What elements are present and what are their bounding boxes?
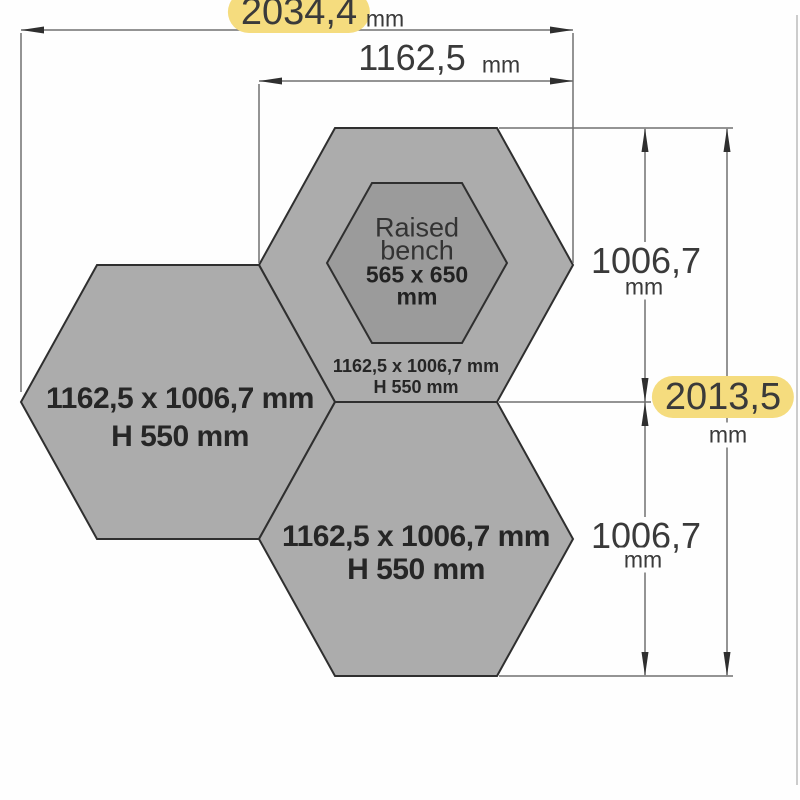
arrowhead-up — [642, 128, 649, 152]
dimension-diagram: 2034,4 mm 1162,5 mm 1006,7 mm 2013,5 mm … — [0, 0, 800, 800]
arrowhead-up — [724, 128, 731, 152]
dim-label-total-width: 2034,4 — [228, 0, 370, 33]
arrowhead-left — [259, 78, 282, 85]
hexagon-left-size-label: 1162,5 x 1006,7 mm — [46, 384, 314, 414]
arrowhead-right — [550, 27, 573, 34]
raised-bench-unit-label: mm — [397, 286, 438, 309]
dim-unit-total-height: mm — [704, 423, 752, 448]
hexagon-left-height-label: H 550 mm — [111, 422, 249, 452]
arrowhead-right — [550, 78, 573, 85]
arrowhead-up — [642, 402, 649, 426]
dim-unit-upper-height: mm — [620, 275, 668, 300]
arrowhead-down — [724, 652, 731, 676]
dim-label-hex-width: 1162,5 — [358, 40, 465, 76]
hexagon-top-size-label: 1162,5 x 1006,7 mm — [333, 357, 499, 375]
arrowhead-down — [642, 378, 649, 402]
raised-bench-name-line2: bench — [380, 238, 454, 265]
dim-unit-total-width: mm — [366, 8, 404, 31]
hexagon-bottom-height-label: H 550 mm — [347, 555, 485, 585]
dim-label-total-height: 2013,5 — [652, 376, 794, 418]
arrowhead-down — [642, 652, 649, 676]
hexagon-top-height-label: H 550 mm — [373, 378, 458, 396]
arrowhead-left — [21, 27, 44, 34]
dim-unit-lower-height: mm — [619, 548, 667, 573]
dim-unit-hex-width: mm — [482, 54, 520, 77]
hexagon-bottom-size-label: 1162,5 x 1006,7 mm — [282, 522, 550, 552]
